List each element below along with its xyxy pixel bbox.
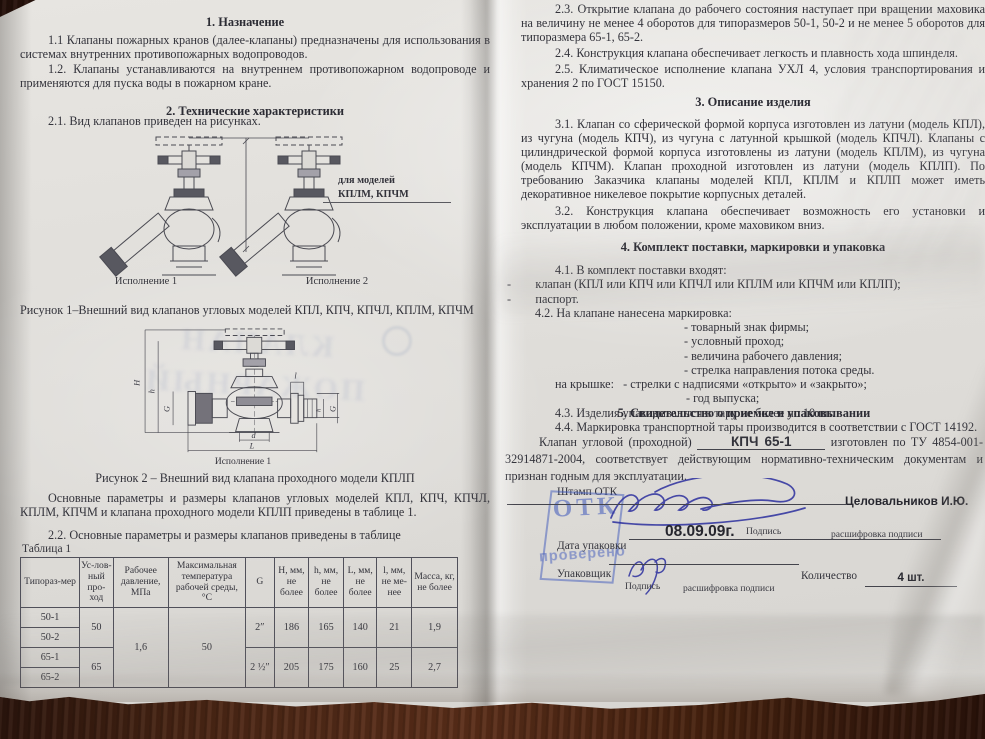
- figure-1-title: Рисунок 1–Внешний вид клапанов угловых м…: [20, 303, 490, 318]
- paragraph-4-1: 4.1. В комплект поставки входят:: [521, 263, 985, 277]
- acceptance-prefix: Клапан угловой (проходной): [539, 435, 692, 449]
- section-1-title: 1. Назначение: [20, 15, 470, 30]
- packing-date-label: Дата упаковки: [557, 540, 626, 552]
- header-H: H, мм, не более: [274, 558, 309, 608]
- cell-l-25: 25: [377, 648, 412, 688]
- dim-l-label: l: [294, 371, 297, 380]
- marking-item-flow-arrow: - стрелка направления потока среды.: [684, 363, 985, 377]
- annotation-line-1: для моделей: [338, 174, 409, 188]
- section-5-title: 5. Свидетельство о приемке и упаковывани…: [505, 406, 983, 421]
- table-row: 50-1 50 1,6 50 2″ 186 165 140 21 1,9: [21, 608, 458, 628]
- header-size: Типораз-мер: [21, 558, 80, 608]
- cell-mass-27: 2,7: [412, 648, 458, 688]
- paragraph-2-4: 2.4. Конструкция клапана обеспечивает ле…: [521, 46, 985, 60]
- right-column: 2.3. Открытие клапана до рабочего состоя…: [505, 0, 985, 739]
- section-3-title: 3. Описание изделия: [521, 95, 985, 110]
- table-header-row: Типораз-мер Ус-лов-ный про-ход Рабочее д…: [21, 558, 458, 608]
- signature-line: [507, 504, 847, 505]
- lid-marking-line: на крышке: - стрелки с надписями «открыт…: [555, 377, 985, 391]
- signature-caption: Подпись: [746, 526, 781, 537]
- header-pressure: Рабочее давление, МПа: [113, 558, 168, 608]
- figure-1-caption-1: Исполнение 1: [96, 276, 196, 287]
- left-column: 1. Назначение 1.1 Клапаны пожарных крано…: [20, 0, 492, 739]
- packer-label: Упаковщик: [557, 568, 611, 580]
- paragraph-2-1: 2.1. Вид клапанов приведен на рисунках.: [20, 114, 490, 128]
- header-l: l, мм, не ме-нее: [377, 558, 412, 608]
- paragraph-3-2: 3.2. Конструкция клапана обеспечивает во…: [521, 204, 985, 232]
- annotation-leader-line: [323, 202, 451, 203]
- header-h: h, мм, не более: [309, 558, 344, 608]
- dim-h2-label: h: [316, 409, 323, 412]
- marking-item-pressure: - величина рабочего давления;: [684, 349, 985, 363]
- cell-temp: 50: [168, 608, 245, 688]
- inspector-name: Целовальников И.Ю.: [845, 494, 968, 508]
- packing-date-line: [629, 539, 941, 540]
- cell-dn-50: 50: [80, 608, 114, 648]
- supply-list-item-valve: - клапан (КПЛ или КПЧ или КПЧЛ или КПЛМ …: [507, 277, 985, 291]
- annotation-line-2: КПЛМ, КПЧМ: [338, 188, 409, 202]
- cell-size-50-1: 50-1: [21, 608, 80, 628]
- paragraph-params: Основные параметры и размеры клапанов уг…: [20, 491, 490, 519]
- cell-h-165: 165: [309, 608, 344, 648]
- cell-mass-19: 1,9: [412, 608, 458, 648]
- figure-2-valve-drawing: H h G l h G d L: [132, 328, 384, 455]
- cell-l-21: 21: [377, 608, 412, 648]
- table-label: Таблица 1: [22, 543, 71, 555]
- dim-G-left-label: G: [162, 406, 171, 412]
- paragraph-2-2: 2.2. Основные параметры и размеры клапан…: [20, 528, 490, 542]
- paragraph-4-2: 4.2. На клапане нанесена маркировка:: [521, 306, 985, 320]
- cell-H-205: 205: [274, 648, 309, 688]
- bleed-through-emblem: [382, 326, 412, 356]
- cell-g-2: 2″: [246, 608, 275, 648]
- marking-item-bore: - условный проход;: [684, 334, 985, 348]
- header-G: G: [246, 558, 275, 608]
- packer-signature-line: [609, 564, 799, 565]
- packer-decode-caption: расшифровка подписи: [683, 583, 775, 594]
- figure-1-annotation: для моделей КПЛМ, КПЧМ: [338, 174, 409, 202]
- cell-L-160: 160: [343, 648, 377, 688]
- acceptance-paragraph: Клапан угловой (проходной) КПЧ 65-1 изго…: [505, 433, 983, 484]
- cell-pressure: 1,6: [113, 608, 168, 688]
- marking-item-year: - год выпуска;: [686, 391, 985, 405]
- header-temp: Максимальная температура рабочей среды, …: [168, 558, 245, 608]
- acceptance-model-value: КПЧ 65-1: [697, 434, 825, 450]
- cell-h-175: 175: [309, 648, 344, 688]
- header-L: L, мм, не более: [343, 558, 377, 608]
- cell-dn-65: 65: [80, 648, 114, 688]
- parameters-table: Типораз-мер Ус-лов-ный про-ход Рабочее д…: [20, 557, 458, 688]
- header-mass: Масса, кг, не более: [412, 558, 458, 608]
- quantity-label: Количество: [801, 570, 857, 582]
- figure-1-valve-drawing: [48, 134, 452, 280]
- marking-item-trademark: - товарный знак фирмы;: [684, 320, 985, 334]
- section-5-block: 5. Свидетельство о приемке и упаковывани…: [505, 406, 983, 484]
- packer-signature-caption: Подпись: [625, 581, 660, 592]
- figure-2-title: Рисунок 2 – Внешний вид клапана проходно…: [20, 471, 490, 486]
- dim-H-label: H: [132, 379, 141, 387]
- cell-size-65-2: 65-2: [21, 668, 80, 688]
- paragraph-3-1: 3.1. Клапан со сферической формой корпус…: [521, 117, 985, 201]
- supply-list-item-passport: - паспорт.: [507, 292, 985, 306]
- dim-G-right-label: G: [328, 406, 337, 412]
- cell-size-65-1: 65-1: [21, 648, 80, 668]
- paragraph-2-3: 2.3. Открытие клапана до рабочего состоя…: [521, 2, 985, 44]
- marking-list: - товарный знак фирмы; - условный проход…: [684, 320, 985, 377]
- paragraph-2-5: 2.5. Климатическое исполнение клапана УХ…: [521, 62, 985, 90]
- dim-h-label: h: [147, 389, 156, 393]
- header-dn: Ус-лов-ный про-ход: [80, 558, 114, 608]
- figure-1-caption-2: Исполнение 2: [287, 276, 387, 287]
- figure-2-caption: Исполнение 1: [193, 457, 293, 467]
- cell-L-140: 140: [343, 608, 377, 648]
- cell-size-50-2: 50-2: [21, 628, 80, 648]
- cell-g-25: 2 ½″: [246, 648, 275, 688]
- section-4-title: 4. Комплект поставки, маркировки и упако…: [521, 240, 985, 255]
- paragraph-1-2: 1.2. Клапаны устанавливаются на внутренн…: [20, 62, 490, 90]
- quantity-value: 4 шт.: [865, 572, 957, 587]
- document-page: 1. Назначение 1.1 Клапаны пожарных крано…: [0, 0, 985, 739]
- acceptance-sign-area: Штамп ОТК ОТК проверено Целовальников И.…: [503, 480, 985, 620]
- cell-H-186: 186: [274, 608, 309, 648]
- paragraph-1-1: 1.1 Клапаны пожарных кранов (далее-клапа…: [20, 33, 490, 61]
- dim-L-label: L: [249, 441, 255, 450]
